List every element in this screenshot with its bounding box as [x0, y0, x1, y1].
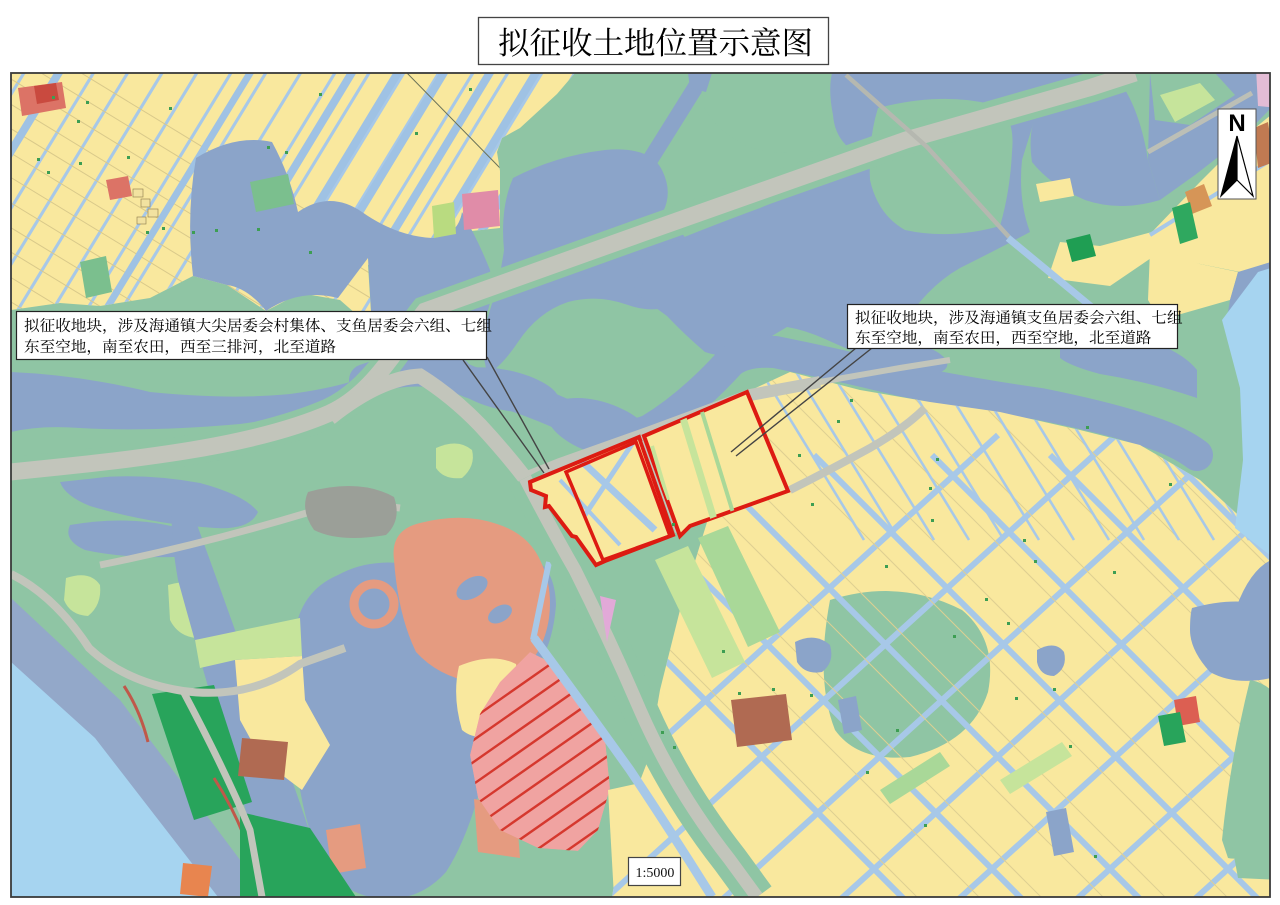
svg-text:N: N: [1228, 110, 1245, 137]
svg-text:1:5000: 1:5000: [636, 866, 675, 881]
